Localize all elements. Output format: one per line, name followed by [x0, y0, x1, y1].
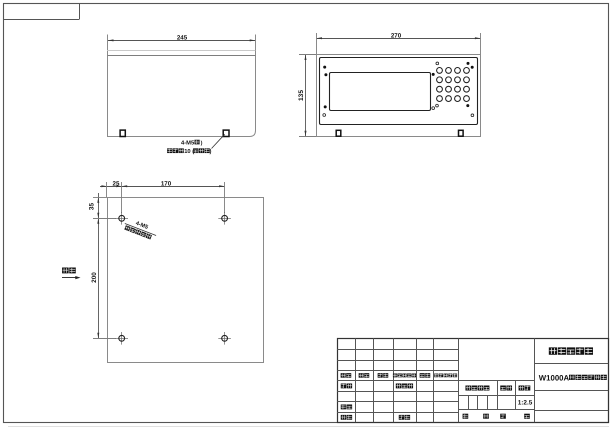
svg-text:270: 270 — [391, 33, 402, 40]
svg-text:4-M5: 4-M5 — [181, 141, 195, 147]
svg-text:170: 170 — [161, 181, 172, 188]
svg-text:25: 25 — [113, 181, 120, 188]
svg-text:1:2.5: 1:2.5 — [518, 399, 533, 406]
svg-text:35: 35 — [89, 203, 96, 211]
svg-text:W1000A: W1000A — [539, 373, 570, 382]
svg-text:): ) — [201, 141, 203, 147]
svg-text:135: 135 — [298, 90, 305, 101]
svg-text:): ) — [210, 148, 212, 155]
svg-text:245: 245 — [177, 35, 188, 42]
svg-text:10: 10 — [184, 148, 190, 155]
svg-text:200: 200 — [91, 272, 98, 283]
